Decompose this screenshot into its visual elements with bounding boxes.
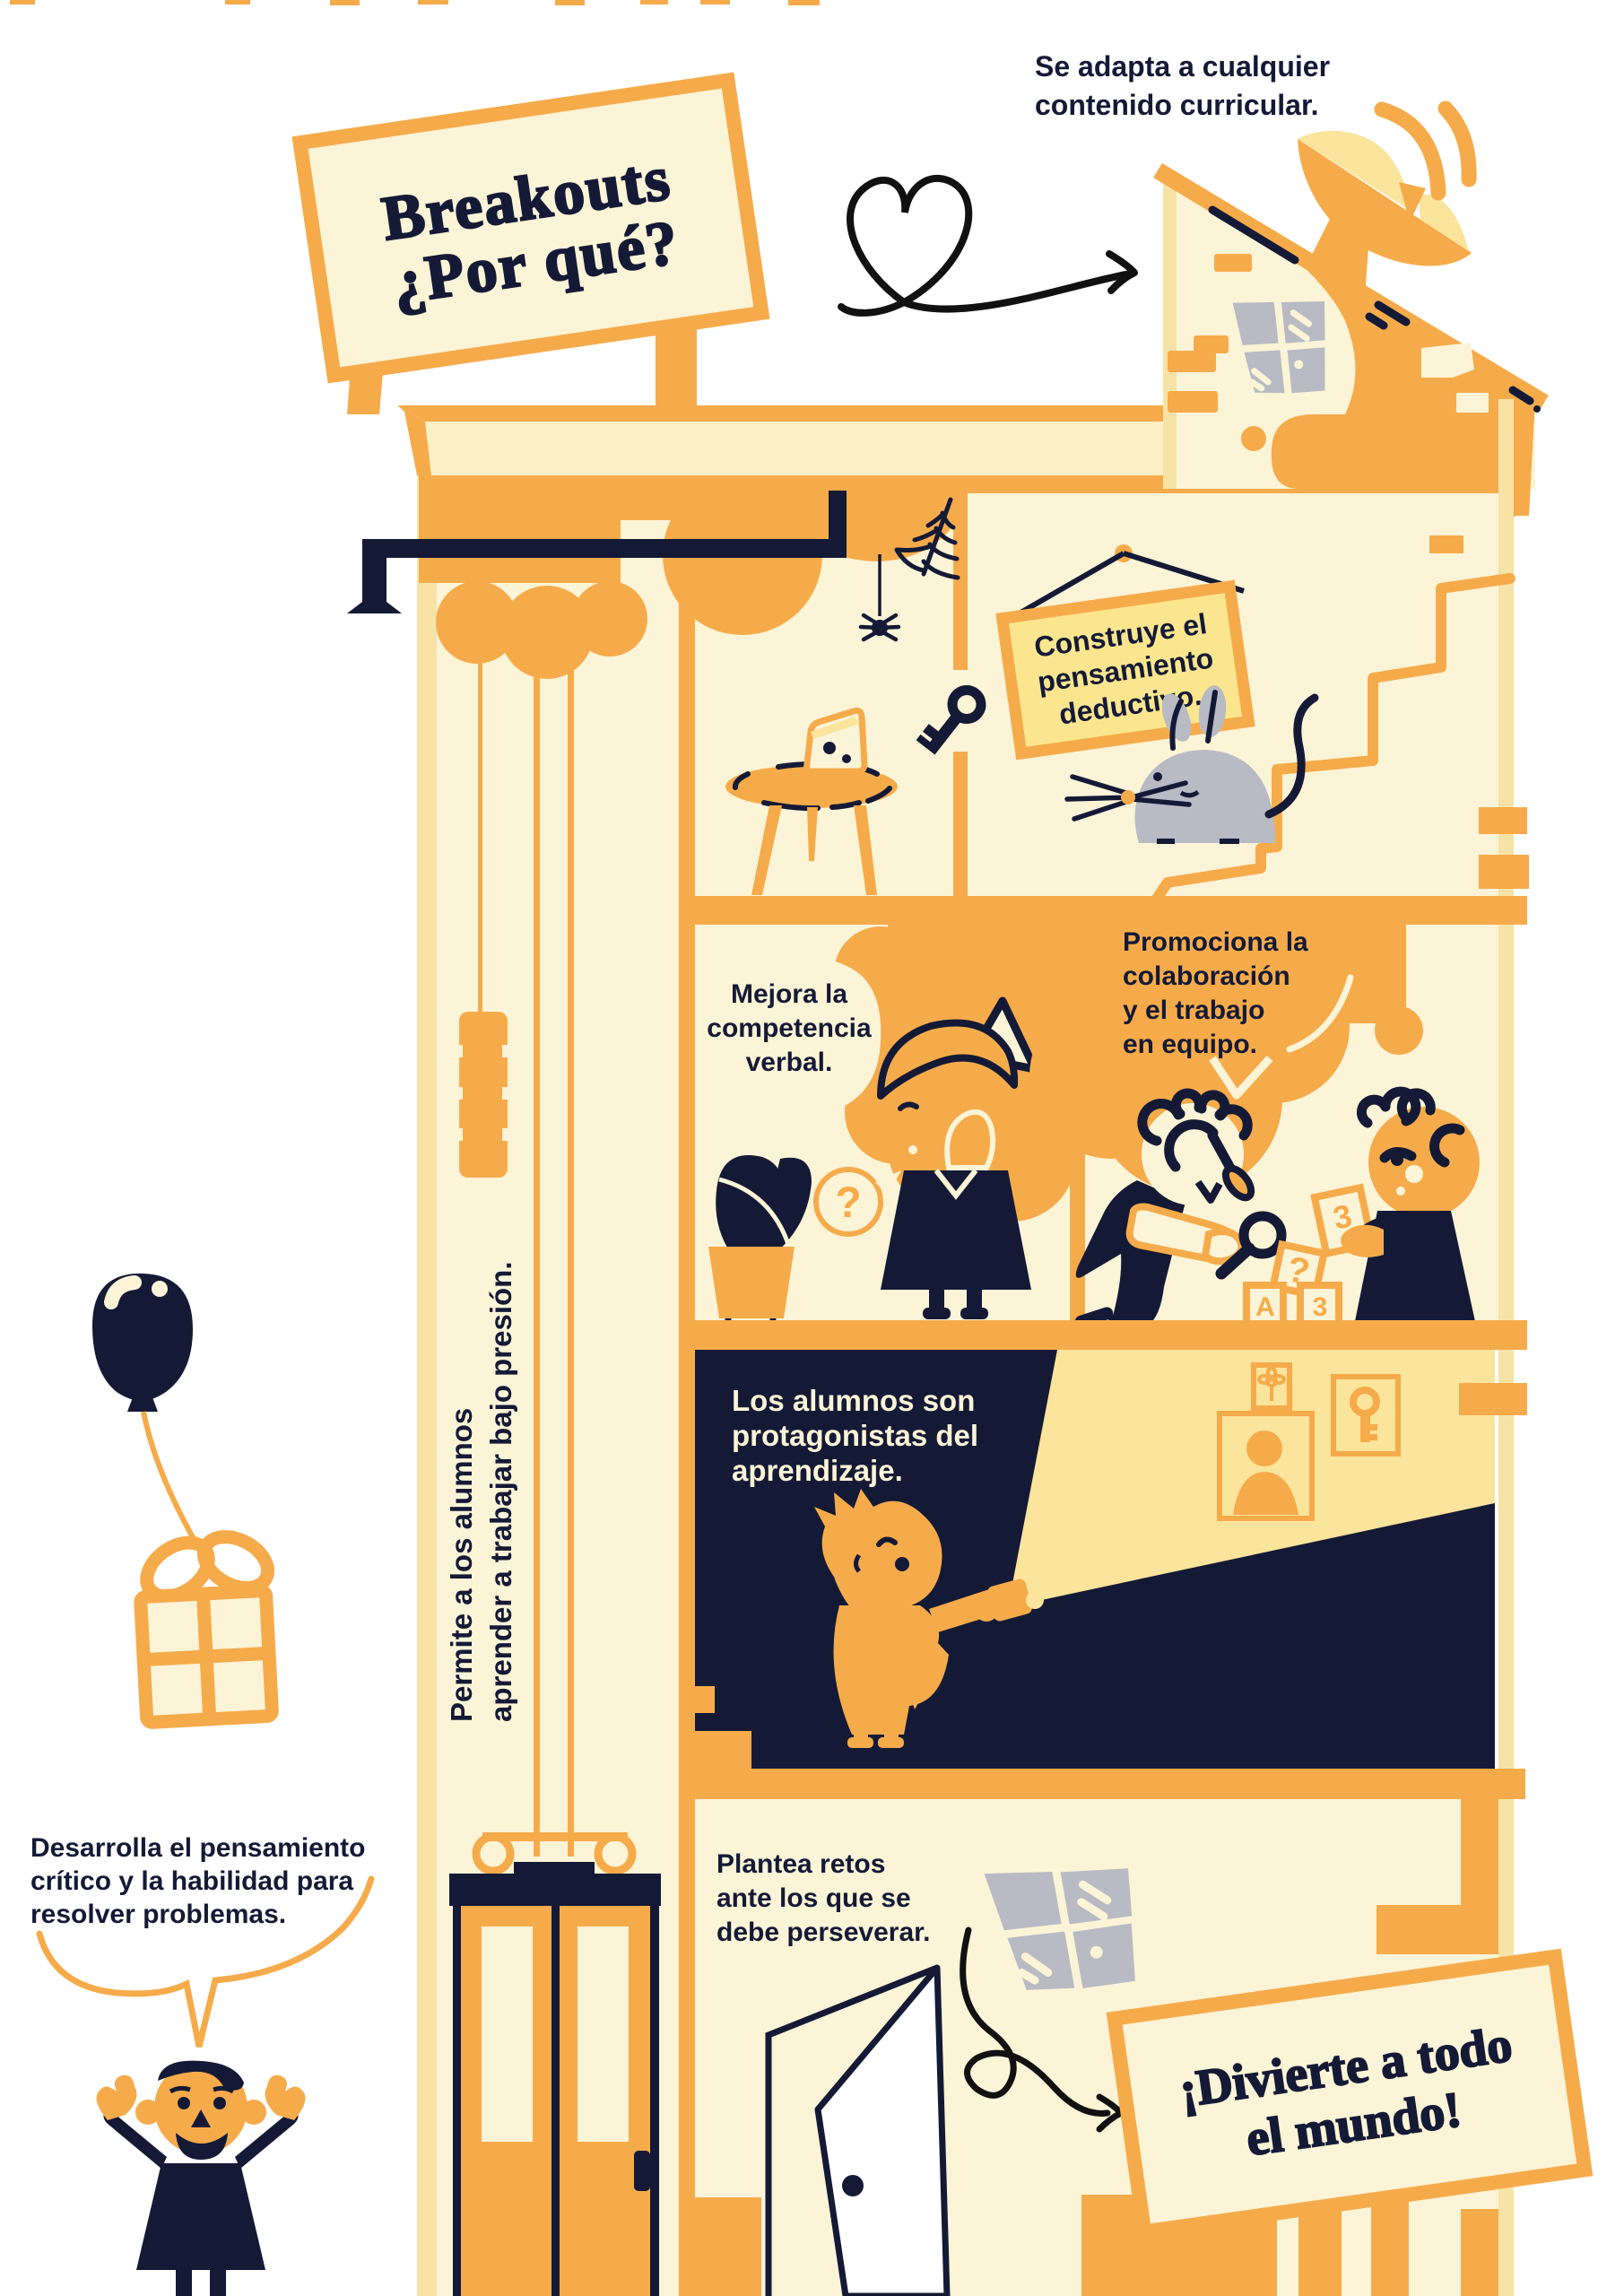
svg-text:colaboración: colaboración [1123,961,1290,991]
svg-text:Los alumnos son: Los alumnos son [732,1384,975,1417]
svg-text:en equipo.: en equipo. [1123,1030,1257,1059]
svg-text:ante los que se: ante los que se [716,1883,911,1913]
svg-text:verbal.: verbal. [746,1048,833,1077]
svg-text:aprender a trabajar bajo presi: aprender a trabajar bajo presión. [484,1262,517,1723]
svg-text:competencia: competencia [707,1013,872,1043]
svg-text:crítico y la habilidad para: crítico y la habilidad para [30,1866,353,1896]
svg-text:aprendizaje.: aprendizaje. [732,1454,903,1487]
svg-text:3: 3 [1313,1292,1328,1322]
svg-text:protagonistas del: protagonistas del [732,1419,978,1452]
svg-text:y el trabajo: y el trabajo [1123,996,1264,1025]
svg-text:resolver problemas.: resolver problemas. [30,1900,286,1929]
svg-text:Permite a los alumnos: Permite a los alumnos [445,1408,478,1722]
svg-text:Plantea retos: Plantea retos [716,1849,885,1879]
svg-text:debe perseverar.: debe perseverar. [716,1918,931,1947]
svg-text:Mejora la: Mejora la [731,979,847,1009]
svg-text:Desarrolla el pensamiento: Desarrolla el pensamiento [30,1833,365,1863]
svg-text:Promociona la: Promociona la [1123,927,1308,957]
svg-text:contenido curricular.: contenido curricular. [1035,89,1319,121]
svg-text:?: ? [835,1179,861,1227]
svg-text:Se adapta a cualquier: Se adapta a cualquier [1035,50,1330,83]
svg-text:A: A [1255,1292,1275,1322]
